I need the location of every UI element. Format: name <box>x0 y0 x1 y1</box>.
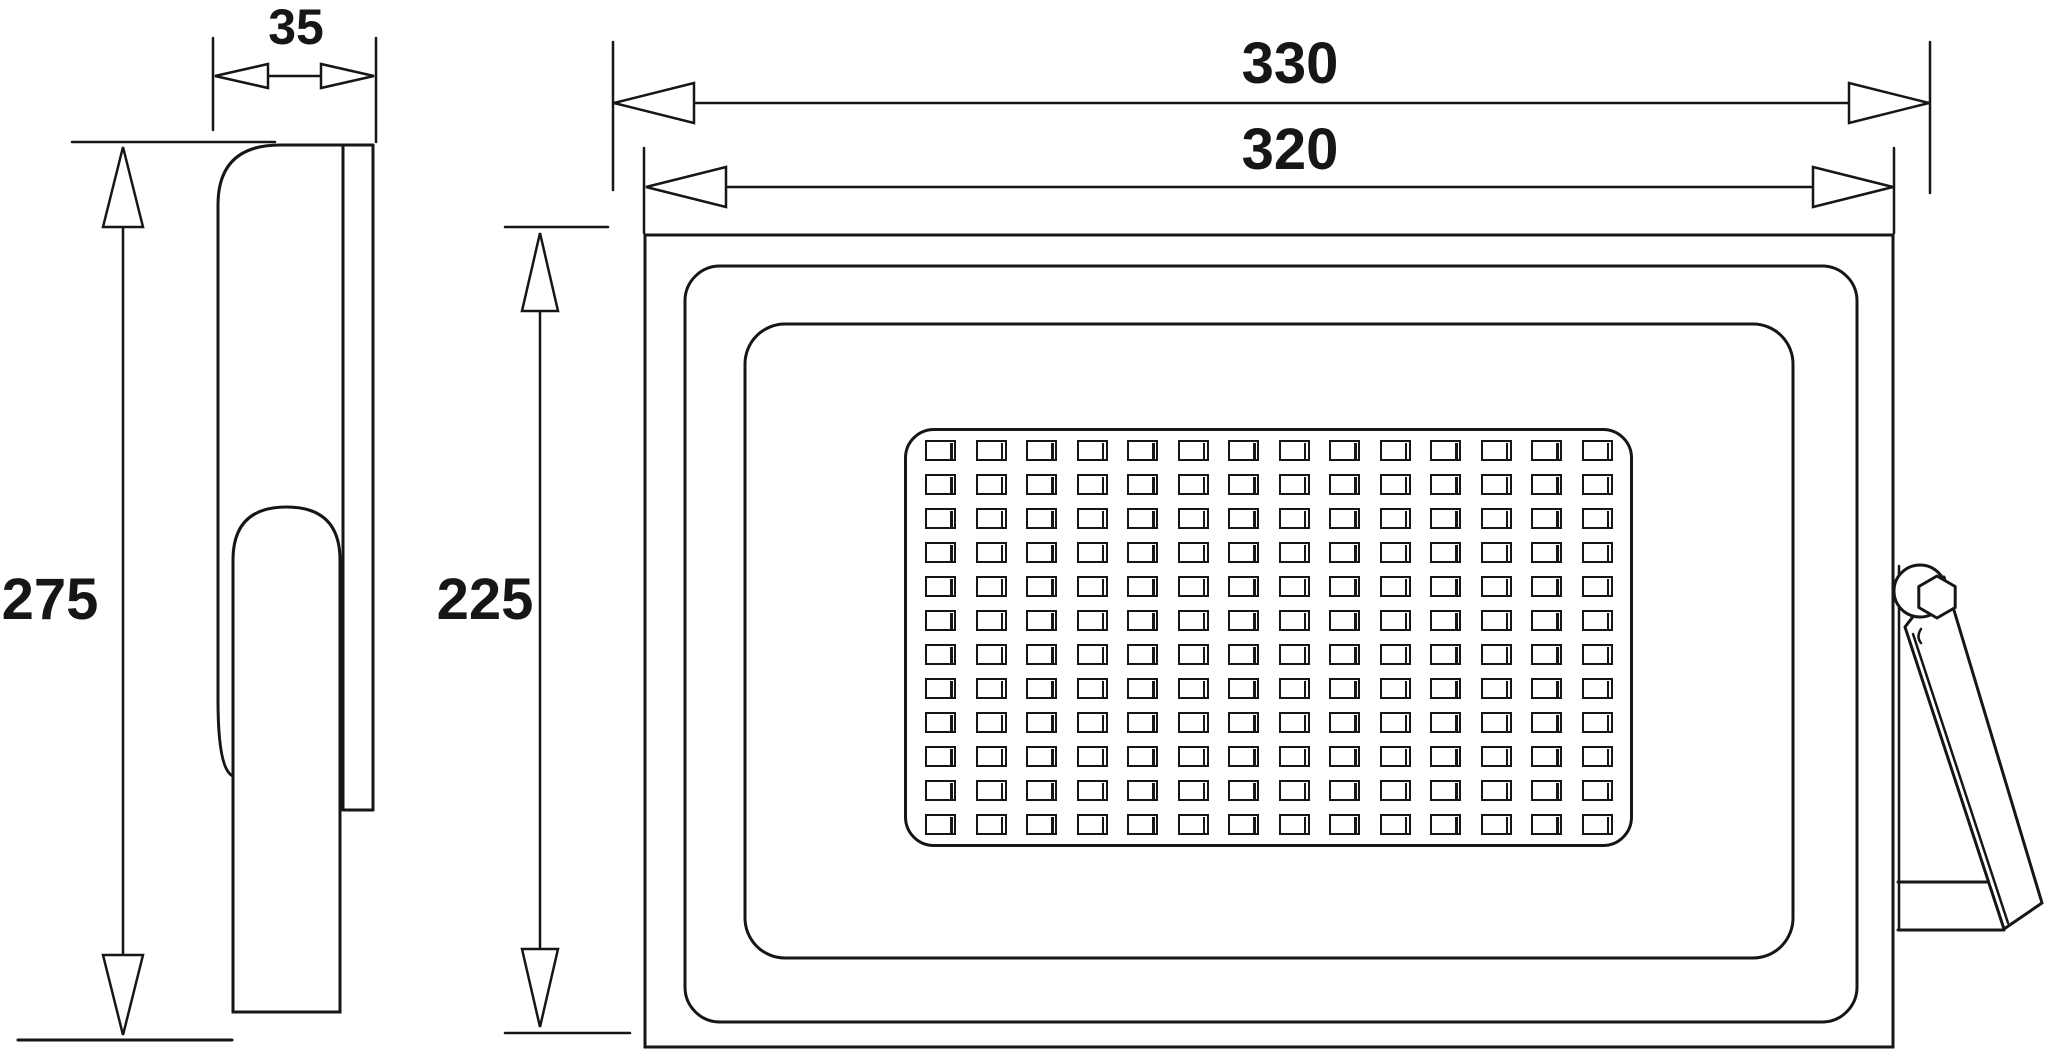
led-cell <box>1430 508 1461 529</box>
led-cell-bevel <box>1405 545 1408 561</box>
led-cell <box>1582 746 1613 767</box>
led-cell <box>1531 780 1562 801</box>
led-cell <box>1380 712 1411 733</box>
led-cell-bevel <box>1253 715 1256 731</box>
led-cell <box>1279 610 1310 631</box>
led-cell-bevel <box>1203 647 1206 663</box>
led-cell-bevel <box>1354 613 1357 629</box>
led-cell-bevel <box>1455 545 1458 561</box>
led-cell-bevel <box>1253 443 1256 459</box>
led-cell-bevel <box>1506 477 1509 493</box>
led-cell-bevel <box>1253 613 1256 629</box>
led-cell <box>1228 712 1259 733</box>
led-cell-bevel <box>1253 681 1256 697</box>
led-cell <box>1582 814 1613 835</box>
dim-225-arrow-top <box>522 233 558 311</box>
led-cell <box>976 440 1007 461</box>
led-cell-bevel <box>1354 681 1357 697</box>
led-cell <box>1531 746 1562 767</box>
led-cell-bevel <box>1304 613 1307 629</box>
led-cell <box>925 508 956 529</box>
led-cell-bevel <box>1455 443 1458 459</box>
led-cell <box>1329 474 1360 495</box>
led-cell <box>1481 508 1512 529</box>
led-cell <box>1279 576 1310 597</box>
led-cell <box>976 780 1007 801</box>
led-cell-bevel <box>1556 817 1559 833</box>
led-cell-bevel <box>950 817 953 833</box>
led-cell <box>1430 814 1461 835</box>
led-cell-bevel <box>1304 783 1307 799</box>
led-cell-bevel <box>1051 749 1054 765</box>
led-cell-bevel <box>1102 545 1105 561</box>
led-cell-bevel <box>950 681 953 697</box>
led-cell <box>1481 712 1512 733</box>
led-cell-bevel <box>1001 511 1004 527</box>
led-cell-bevel <box>1152 477 1155 493</box>
led-cell <box>1481 814 1512 835</box>
led-cell <box>976 576 1007 597</box>
led-cell-bevel <box>1001 783 1004 799</box>
led-cell-bevel <box>1102 511 1105 527</box>
led-cell <box>1279 508 1310 529</box>
led-cell-bevel <box>1506 545 1509 561</box>
led-cell <box>1582 610 1613 631</box>
led-cell <box>1582 780 1613 801</box>
led-cell-bevel <box>950 477 953 493</box>
led-cell-bevel <box>1051 783 1054 799</box>
led-cell <box>1077 746 1108 767</box>
led-cell <box>1430 746 1461 767</box>
dim-320-arrow-right <box>1813 167 1893 207</box>
led-cell-bevel <box>950 749 953 765</box>
led-cell-bevel <box>1304 715 1307 731</box>
led-cell-bevel <box>1607 511 1610 527</box>
led-cell-bevel <box>1051 545 1054 561</box>
led-cell-bevel <box>1203 783 1206 799</box>
led-cell-bevel <box>1607 647 1610 663</box>
led-cell <box>1228 474 1259 495</box>
led-cell <box>1127 712 1158 733</box>
led-cell-bevel <box>1001 749 1004 765</box>
led-cell-bevel <box>1556 715 1559 731</box>
dim-35-arrow-left <box>215 64 268 88</box>
side-bracket <box>233 507 340 1012</box>
led-cell <box>1380 542 1411 563</box>
mounting-bracket <box>1894 565 2042 930</box>
dim-330-arrow-left <box>614 83 694 123</box>
led-cell <box>1329 440 1360 461</box>
led-cell-bevel <box>1506 817 1509 833</box>
led-cell <box>1026 746 1057 767</box>
led-cell <box>1077 542 1108 563</box>
dim-35-arrow-right <box>321 64 374 88</box>
led-cell <box>1481 542 1512 563</box>
led-cell <box>1329 746 1360 767</box>
dim-label-body-width: 320 <box>1190 122 1390 178</box>
led-cell <box>1582 508 1613 529</box>
led-cell-bevel <box>1203 545 1206 561</box>
led-cell-bevel <box>1051 647 1054 663</box>
led-cell-bevel <box>1556 681 1559 697</box>
led-cell <box>1279 542 1310 563</box>
led-cell-bevel <box>1152 545 1155 561</box>
led-cell <box>1178 474 1209 495</box>
led-cell <box>1481 440 1512 461</box>
led-cell-bevel <box>950 647 953 663</box>
led-cell <box>1228 644 1259 665</box>
led-cell-bevel <box>1506 443 1509 459</box>
led-cell <box>976 542 1007 563</box>
led-cell <box>1026 678 1057 699</box>
led-cell-bevel <box>1203 443 1206 459</box>
led-cell <box>1329 780 1360 801</box>
led-cell-bevel <box>1405 749 1408 765</box>
led-cell <box>976 508 1007 529</box>
led-cell <box>976 610 1007 631</box>
led-cell-bevel <box>1152 681 1155 697</box>
led-cell-bevel <box>1607 715 1610 731</box>
led-cell-bevel <box>1354 579 1357 595</box>
led-cell-bevel <box>1607 817 1610 833</box>
led-cell <box>1026 440 1057 461</box>
led-cell <box>976 712 1007 733</box>
led-cell <box>1026 644 1057 665</box>
led-cell-bevel <box>1253 511 1256 527</box>
led-cell <box>1127 576 1158 597</box>
led-cell-bevel <box>1203 715 1206 731</box>
led-cell-bevel <box>1556 511 1559 527</box>
led-cell <box>1026 780 1057 801</box>
led-cell-bevel <box>1203 579 1206 595</box>
led-cell <box>1077 678 1108 699</box>
led-cell-bevel <box>1405 783 1408 799</box>
led-cell-bevel <box>1001 545 1004 561</box>
led-cell-bevel <box>1253 579 1256 595</box>
dim-330-arrow-right <box>1849 83 1929 123</box>
led-cell-bevel <box>1556 749 1559 765</box>
led-cell <box>1279 712 1310 733</box>
led-cell-bevel <box>1455 613 1458 629</box>
led-cell-bevel <box>1304 647 1307 663</box>
led-cell-bevel <box>1001 681 1004 697</box>
dim-225-arrow-bottom <box>522 949 558 1027</box>
led-cell <box>1228 780 1259 801</box>
led-cell-bevel <box>1607 443 1610 459</box>
led-cell <box>1531 542 1562 563</box>
dim-label-body-height: 225 <box>385 570 585 630</box>
led-cell <box>1077 644 1108 665</box>
led-cell-bevel <box>1102 817 1105 833</box>
led-cell <box>1582 576 1613 597</box>
led-cell-bevel <box>1405 477 1408 493</box>
led-cell <box>1380 814 1411 835</box>
led-cell <box>1329 814 1360 835</box>
led-cell-bevel <box>1354 443 1357 459</box>
led-cell-bevel <box>1607 545 1610 561</box>
led-cell <box>1228 508 1259 529</box>
led-cell-bevel <box>1506 579 1509 595</box>
led-cell <box>925 814 956 835</box>
led-cell <box>1077 474 1108 495</box>
led-cell-bevel <box>1102 443 1105 459</box>
led-cell-bevel <box>1405 579 1408 595</box>
led-cell-bevel <box>1506 613 1509 629</box>
led-cell <box>1582 678 1613 699</box>
led-cell-bevel <box>1102 715 1105 731</box>
led-cell-bevel <box>1556 477 1559 493</box>
led-cell-bevel <box>1203 749 1206 765</box>
led-cell-bevel <box>1607 579 1610 595</box>
led-cell <box>1228 576 1259 597</box>
led-cell <box>1127 508 1158 529</box>
dim-label-depth: 35 <box>196 2 396 52</box>
dim-label-overall-width: 330 <box>1190 36 1390 92</box>
led-cell-bevel <box>1405 681 1408 697</box>
led-cell <box>1178 712 1209 733</box>
led-panel <box>904 428 1633 847</box>
led-cell <box>1430 712 1461 733</box>
led-cell-bevel <box>1405 443 1408 459</box>
led-cell <box>1279 780 1310 801</box>
led-cell <box>1178 542 1209 563</box>
led-cell-bevel <box>1152 443 1155 459</box>
led-cell-bevel <box>1001 817 1004 833</box>
led-cell-bevel <box>1354 647 1357 663</box>
led-cell <box>1481 610 1512 631</box>
led-cell <box>1077 814 1108 835</box>
led-cell-bevel <box>1455 579 1458 595</box>
led-cell <box>1531 474 1562 495</box>
dim-320-arrow-left <box>646 167 726 207</box>
led-cell <box>1380 508 1411 529</box>
led-cell <box>1380 746 1411 767</box>
led-cell <box>1279 644 1310 665</box>
led-cell-bevel <box>1203 681 1206 697</box>
led-cell-bevel <box>1051 715 1054 731</box>
led-cell <box>1077 576 1108 597</box>
led-cell-bevel <box>1607 783 1610 799</box>
led-cell-bevel <box>1506 715 1509 731</box>
led-cell <box>1531 712 1562 733</box>
led-cell <box>1380 678 1411 699</box>
led-cell-bevel <box>1253 545 1256 561</box>
led-cell <box>925 440 956 461</box>
led-cell <box>1531 440 1562 461</box>
led-cell-bevel <box>1304 443 1307 459</box>
led-cell <box>925 576 956 597</box>
led-cell-bevel <box>1253 749 1256 765</box>
led-cell-bevel <box>1051 817 1054 833</box>
led-cell-bevel <box>950 715 953 731</box>
led-cell-bevel <box>1304 511 1307 527</box>
led-cell <box>1481 474 1512 495</box>
led-cell-bevel <box>1304 545 1307 561</box>
led-cell <box>1329 542 1360 563</box>
led-cell-bevel <box>1051 511 1054 527</box>
led-cell-bevel <box>1506 647 1509 663</box>
led-cell-bevel <box>1253 783 1256 799</box>
led-cell-bevel <box>1152 579 1155 595</box>
led-cell <box>1127 644 1158 665</box>
led-cell-bevel <box>1304 477 1307 493</box>
led-cell <box>1430 780 1461 801</box>
led-cell-bevel <box>1001 477 1004 493</box>
led-cell <box>1430 678 1461 699</box>
led-cell-bevel <box>1405 511 1408 527</box>
led-cell <box>1531 644 1562 665</box>
led-cell-bevel <box>1556 647 1559 663</box>
led-cell-bevel <box>950 579 953 595</box>
led-cell-bevel <box>1001 647 1004 663</box>
led-cell-bevel <box>1102 477 1105 493</box>
led-cell-bevel <box>950 783 953 799</box>
led-cell <box>1228 746 1259 767</box>
led-cell-bevel <box>950 511 953 527</box>
led-cell <box>925 474 956 495</box>
led-cell <box>1127 678 1158 699</box>
led-cell <box>1127 610 1158 631</box>
dim-275-arrow-bottom <box>103 955 143 1035</box>
led-cell-bevel <box>1607 613 1610 629</box>
led-cell <box>1228 610 1259 631</box>
led-cell <box>1481 576 1512 597</box>
led-cell-bevel <box>1152 817 1155 833</box>
led-cell <box>1329 610 1360 631</box>
led-cell-bevel <box>1354 749 1357 765</box>
led-cell <box>1430 576 1461 597</box>
led-cell <box>1077 712 1108 733</box>
led-cell <box>1178 610 1209 631</box>
led-cell <box>1329 678 1360 699</box>
led-cell <box>1178 746 1209 767</box>
led-cell-bevel <box>1001 579 1004 595</box>
led-cell-bevel <box>1354 817 1357 833</box>
led-cell-bevel <box>1354 477 1357 493</box>
led-cell <box>1127 814 1158 835</box>
dim-275-arrow-top <box>103 147 143 227</box>
led-cell <box>1430 542 1461 563</box>
led-cell-bevel <box>1253 647 1256 663</box>
led-cell <box>1228 678 1259 699</box>
led-cell <box>976 678 1007 699</box>
led-cell <box>1531 576 1562 597</box>
led-cell-bevel <box>1102 783 1105 799</box>
led-cell <box>1077 780 1108 801</box>
led-cell <box>1481 780 1512 801</box>
led-cell <box>1481 746 1512 767</box>
led-cell <box>925 644 956 665</box>
led-cell <box>1582 712 1613 733</box>
led-cell <box>1178 780 1209 801</box>
led-cell-bevel <box>1304 817 1307 833</box>
led-cell-bevel <box>1152 715 1155 731</box>
led-cell <box>1026 542 1057 563</box>
led-cell <box>925 610 956 631</box>
led-cell-bevel <box>1455 477 1458 493</box>
led-cell-bevel <box>1203 613 1206 629</box>
led-cell <box>1582 542 1613 563</box>
led-cell <box>1279 440 1310 461</box>
led-cell <box>1228 542 1259 563</box>
led-cell <box>1329 712 1360 733</box>
led-cell <box>1178 440 1209 461</box>
led-cell <box>1380 440 1411 461</box>
led-cell-bevel <box>1455 715 1458 731</box>
led-cell <box>1279 474 1310 495</box>
led-cell <box>925 712 956 733</box>
led-cell-bevel <box>950 443 953 459</box>
led-cell-bevel <box>1506 681 1509 697</box>
led-cell <box>1127 780 1158 801</box>
led-cell-bevel <box>1304 579 1307 595</box>
led-cell <box>1127 440 1158 461</box>
led-cell <box>1077 610 1108 631</box>
led-cell-bevel <box>1354 783 1357 799</box>
led-cell-bevel <box>1253 817 1256 833</box>
led-cell-bevel <box>1102 681 1105 697</box>
led-cell <box>1127 542 1158 563</box>
led-cell-bevel <box>1203 511 1206 527</box>
bracket-arm <box>1905 577 2042 929</box>
led-cell <box>925 746 956 767</box>
led-cell-bevel <box>1152 749 1155 765</box>
led-cell <box>1026 576 1057 597</box>
led-cell-bevel <box>1001 715 1004 731</box>
led-cell-bevel <box>1102 647 1105 663</box>
led-cell <box>976 814 1007 835</box>
led-cell-bevel <box>1556 545 1559 561</box>
led-cell-bevel <box>1405 715 1408 731</box>
bracket-pivot-bolt <box>1919 576 1955 618</box>
led-cell-bevel <box>1455 783 1458 799</box>
led-cell-bevel <box>1253 477 1256 493</box>
led-cell-bevel <box>1152 511 1155 527</box>
led-cell <box>1329 508 1360 529</box>
led-cell <box>1178 814 1209 835</box>
led-cell <box>1329 644 1360 665</box>
led-cell <box>1481 644 1512 665</box>
led-cell-bevel <box>1001 613 1004 629</box>
led-cell-bevel <box>1152 647 1155 663</box>
led-cell-bevel <box>1152 783 1155 799</box>
led-cell <box>925 780 956 801</box>
led-cell-bevel <box>1102 613 1105 629</box>
led-cell-bevel <box>1354 511 1357 527</box>
led-cell <box>1531 610 1562 631</box>
led-cell <box>1430 610 1461 631</box>
led-cell-bevel <box>1455 749 1458 765</box>
led-cell <box>1279 814 1310 835</box>
led-cell <box>1127 746 1158 767</box>
led-cell <box>1026 508 1057 529</box>
led-cell-bevel <box>1455 647 1458 663</box>
led-cell <box>925 678 956 699</box>
led-cell-bevel <box>1354 715 1357 731</box>
led-cell <box>1228 440 1259 461</box>
led-cell <box>1178 644 1209 665</box>
led-cell <box>1582 440 1613 461</box>
led-cell-bevel <box>1556 579 1559 595</box>
led-cell <box>1380 610 1411 631</box>
led-cell <box>1228 814 1259 835</box>
led-cell-bevel <box>1455 511 1458 527</box>
led-cell <box>1279 746 1310 767</box>
led-cell-bevel <box>1405 647 1408 663</box>
led-cell <box>976 644 1007 665</box>
led-cell-bevel <box>1051 579 1054 595</box>
led-cell <box>1178 678 1209 699</box>
